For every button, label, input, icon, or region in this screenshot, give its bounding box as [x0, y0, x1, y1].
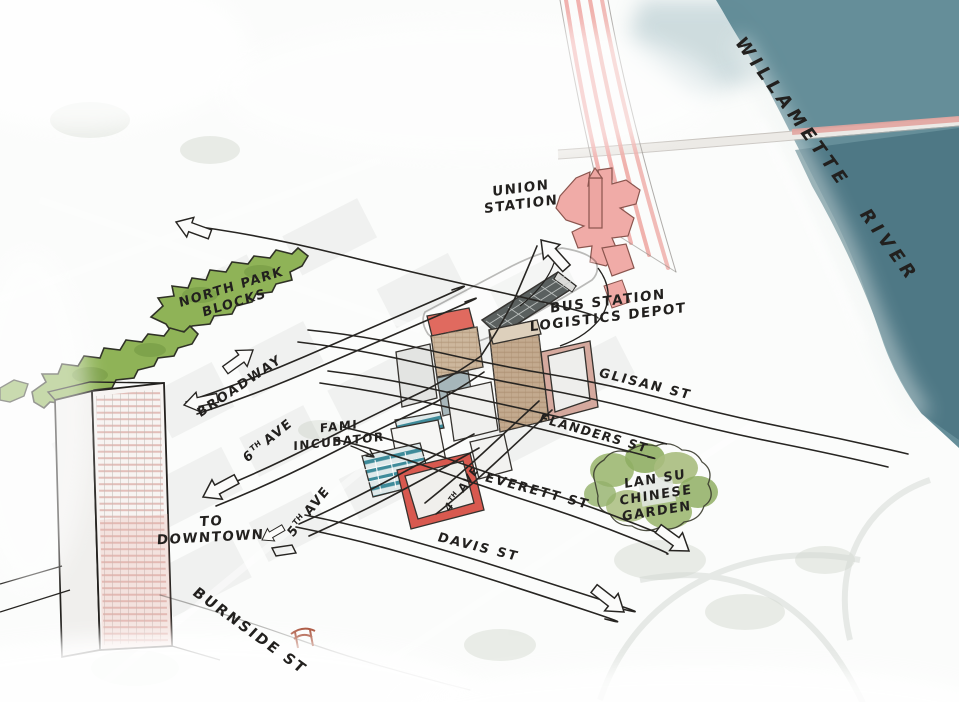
arrow-northwest-icon	[172, 212, 213, 244]
clock-tower	[589, 178, 602, 228]
white-small-building	[470, 434, 512, 479]
arrow-southeast-icon	[587, 580, 630, 621]
map-artwork	[0, 0, 959, 719]
site-plan-map: WILLAMETTE RIVER UNION STATION BUS STATI…	[0, 0, 959, 719]
